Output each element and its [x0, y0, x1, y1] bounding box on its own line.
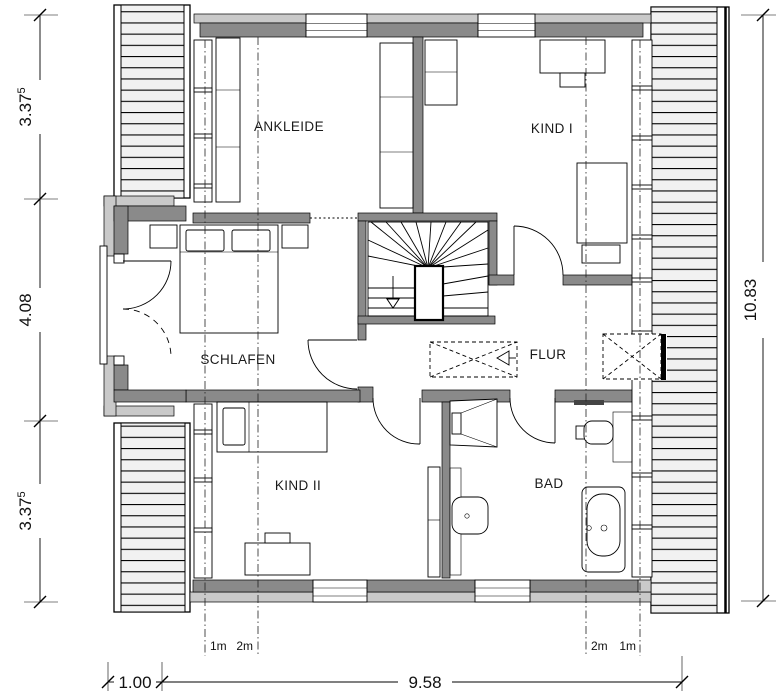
dormer-wall-bottom — [114, 390, 186, 402]
balcony-hinge-top — [114, 254, 124, 263]
wall-kind1-flur — [563, 275, 632, 285]
room-label-schlafen: SCHLAFEN — [200, 352, 275, 367]
ankleide-wardrobe-west — [216, 38, 240, 202]
schlafen-nightstand-west — [150, 225, 177, 248]
dormer-wall-west-upper — [114, 206, 128, 254]
kind2-desk — [245, 543, 310, 575]
dim-right: 10.83 — [741, 279, 760, 322]
door-schlafen — [308, 340, 357, 389]
bad-washbasin — [452, 497, 488, 534]
dim-left-1: 3.375 — [16, 87, 35, 126]
skylight-opening-arrow-icon — [497, 351, 516, 365]
height-label-2m-left: 2m — [236, 639, 253, 653]
knee-storage-east — [632, 40, 652, 577]
balcony-door-frame — [100, 246, 107, 364]
dim-left-3: 3.375 — [16, 491, 35, 530]
wall-stair-north — [358, 213, 497, 221]
kind2-pillow — [223, 408, 245, 445]
facade-band-top — [194, 14, 651, 23]
window-ankleide — [306, 14, 367, 37]
floor-plan-drawing: 1m 2m 2m 1m ANKLEIDE KIND I SCHLAFEN FLU… — [0, 0, 778, 693]
knee-storage-ankleide — [194, 40, 212, 202]
wall-north-3 — [535, 23, 643, 37]
wall-north-2 — [367, 23, 478, 37]
kind1-chair — [560, 73, 585, 87]
room-label-flur: FLUR — [530, 347, 567, 362]
stair-direction-arrow-icon — [387, 276, 399, 308]
bad-shower — [450, 399, 497, 447]
kind2-bed — [217, 402, 327, 452]
door-kind1 — [514, 226, 563, 275]
wall-south-2 — [367, 580, 475, 592]
roof-hatch-bottom-left — [121, 423, 185, 612]
door-bad — [510, 398, 555, 443]
wall-kind2-bad — [442, 402, 450, 578]
room-label-bad: BAD — [535, 476, 564, 491]
skylight-east — [603, 334, 667, 380]
dimension-left: 3.375 4.08 3.375 — [16, 9, 58, 608]
kind2-shelf — [428, 467, 440, 577]
height-label-2m-right: 2m — [591, 639, 608, 653]
window-bad — [475, 580, 530, 602]
skylight-flur — [430, 342, 517, 377]
facade-band-bottom — [190, 592, 651, 602]
window-kind1 — [478, 14, 535, 37]
kind2-chair — [265, 533, 290, 543]
kind1-desk — [540, 40, 605, 73]
wall-south-3 — [530, 580, 638, 592]
furniture — [150, 38, 632, 577]
schlafen-double-bed — [180, 225, 278, 333]
knee-storage-kind2 — [194, 404, 212, 578]
kind1-wardrobe — [425, 40, 457, 105]
dormer-wall-west-lower — [114, 365, 128, 390]
floor-plan-page: 1m 2m 2m 1m ANKLEIDE KIND I SCHLAFEN FLU… — [0, 0, 778, 693]
wall-ankleide-kind1 — [413, 37, 423, 213]
dim-bottom-2: 9.58 — [408, 673, 441, 692]
room-label-ankleide: ANKLEIDE — [254, 119, 324, 134]
dimension-bottom: 1.00 9.58 — [102, 656, 688, 692]
kind1-bed — [577, 163, 627, 243]
room-label-kind2: KIND II — [275, 478, 321, 493]
staircase — [368, 222, 488, 320]
bad-toilet — [576, 412, 632, 462]
schlafen-pillow-right — [232, 230, 270, 251]
dim-bottom-1: 1.00 — [118, 673, 151, 692]
ankleide-wardrobe-east — [380, 43, 413, 208]
height-label-1m-left: 1m — [210, 639, 227, 653]
bad-towel-radiator — [574, 400, 604, 405]
balcony-hinge-bottom — [114, 356, 124, 365]
kind1-nightstand — [582, 245, 620, 263]
stair-well-void — [415, 266, 443, 320]
wall-ankleide-schlafen — [193, 213, 310, 223]
dimension-right: 10.83 — [741, 9, 776, 607]
wall-south-1 — [193, 580, 313, 592]
bad-bathtub — [582, 487, 625, 572]
window-kind2 — [313, 580, 367, 602]
roof-hatch-right — [651, 7, 717, 613]
door-kind2 — [373, 398, 420, 444]
height-label-1m-right: 1m — [619, 639, 636, 653]
roof-hatch-top-left — [121, 5, 184, 198]
wall-kind1-flur-stub — [489, 275, 514, 285]
balcony-double-door — [123, 261, 171, 357]
dim-left-2: 4.08 — [16, 293, 35, 326]
wall-schlafen-kind2 — [186, 390, 360, 402]
room-label-kind1: KIND I — [531, 121, 573, 136]
wall-north-1 — [200, 23, 306, 37]
schlafen-nightstand-east — [282, 225, 308, 248]
